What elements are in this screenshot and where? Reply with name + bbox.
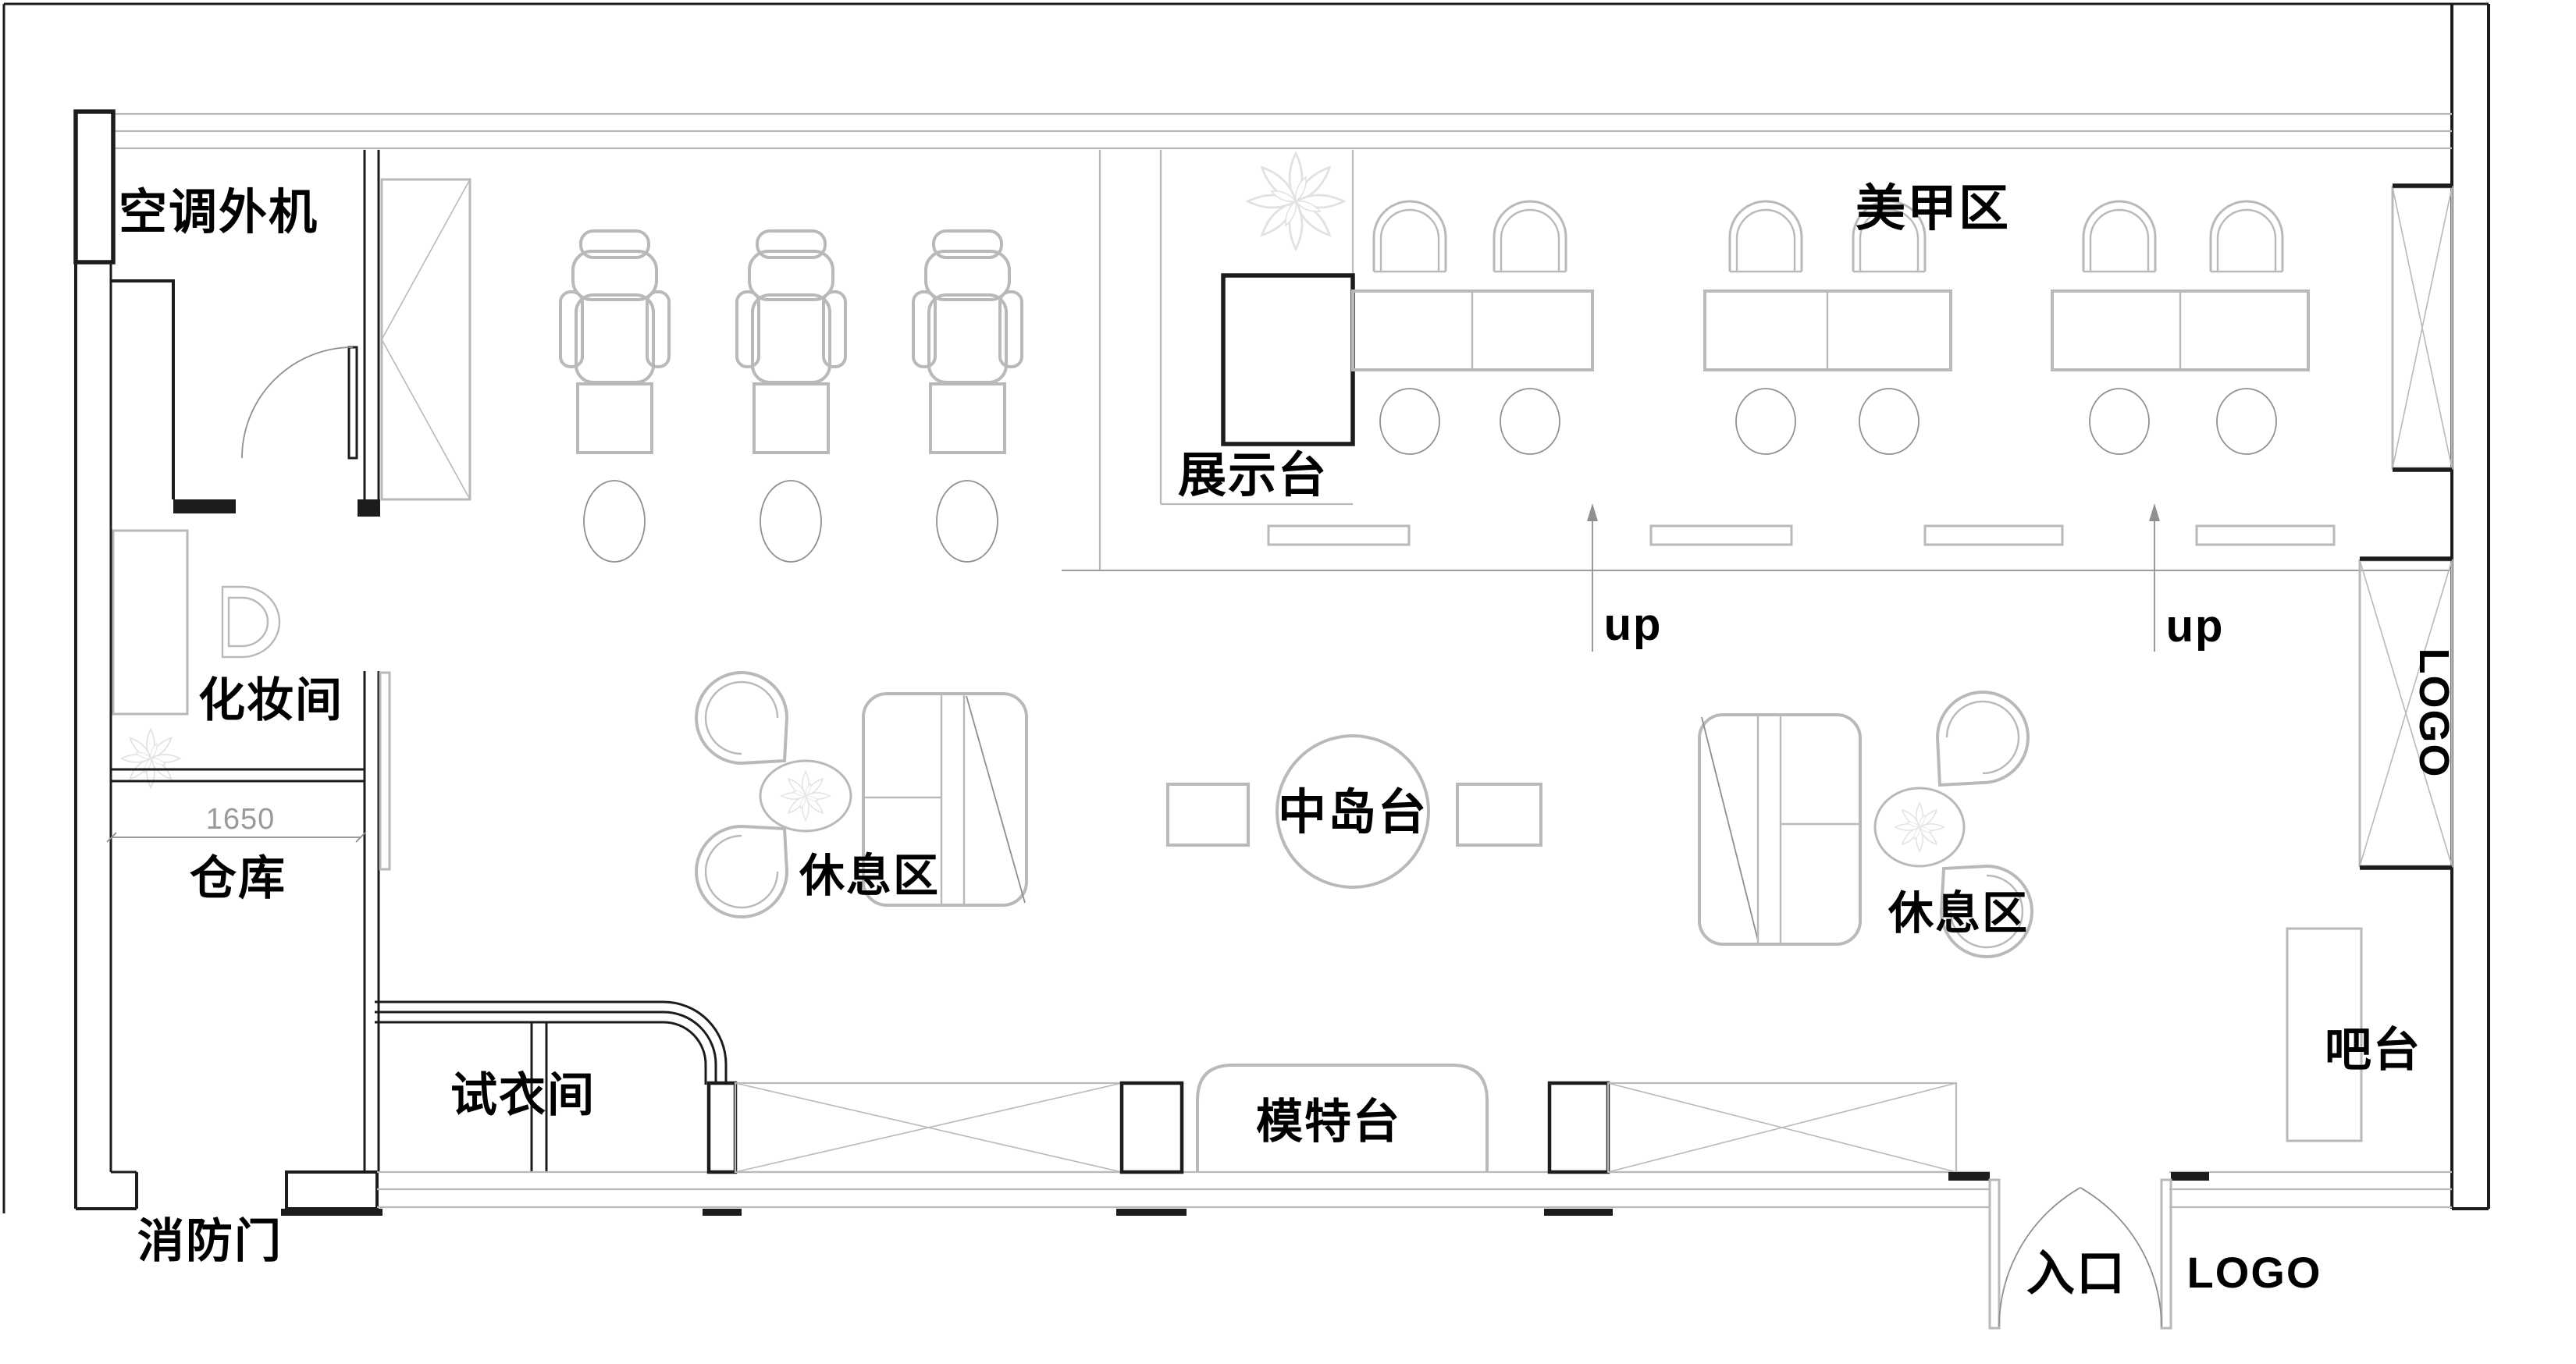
label-logo-front: LOGO [2187,1248,2322,1297]
label-nail-area: 美甲区 [1856,180,2010,236]
side-table [930,384,1005,453]
label-entrance: 入口 [2026,1247,2126,1301]
stool [937,481,998,562]
tech-stool [2217,389,2276,454]
up-arrow-icon [2149,503,2160,521]
flower-decor [122,730,180,788]
window-post [709,1083,735,1172]
fan-chair [696,826,787,917]
floor-mat [1651,526,1791,545]
tech-stool [1736,389,1795,454]
label-bar-counter: 吧台 [2325,1024,2421,1076]
label-display-stand: 展示台 [1178,449,1328,503]
center-island: 中岛台 [1168,736,1541,887]
label-lounge-left: 休息区 [799,851,940,901]
nail-table [1705,291,1951,370]
lounge-left: 休息区 [696,673,1026,917]
label-lounge-right: 休息区 [1888,888,2029,939]
door-leaf [2161,1180,2171,1328]
tech-stool [2090,389,2149,454]
room-makeup: 化妆间 1650 仓库 [107,531,390,1172]
styling-chair-row [560,231,1022,562]
label-model-stage: 模特台 [1256,1096,1401,1148]
door-leaf [1990,1180,1999,1328]
storage-door-leaf [380,673,390,869]
room-fitting: 试衣间 [375,1002,726,1172]
top-wall-band [113,114,2452,148]
label-fitting-room: 试衣间 [450,1069,596,1121]
styling-chair [737,231,845,382]
display-window [1608,1083,1956,1172]
side-table [754,384,828,453]
dimension-1650: 1650 [107,803,365,842]
client-chair [1374,201,1446,272]
tech-stool [1859,389,1919,454]
island-stool [1168,784,1248,845]
nail-zone: 展示台 up [1062,150,2452,652]
sofa [1699,715,1860,944]
label-makeup-room: 化妆间 [198,674,343,726]
client-chair [2211,201,2282,272]
stool [584,481,645,562]
nail-table [1353,291,1592,370]
tech-stool [1380,389,1439,454]
client-chair [1730,201,1802,272]
display-window [735,1083,1122,1172]
lounge-right: 休息区 [1699,692,2032,957]
label-logo-side: LOGO [2411,648,2457,779]
styling-chair [560,231,669,382]
stool [760,481,821,562]
logo-signboard: LOGO [2360,559,2457,868]
client-chair [1494,201,1566,272]
window-post [1122,1083,1182,1172]
flower-decor [1248,154,1344,250]
label-fire-door: 消防门 [137,1215,283,1267]
ac-room-door-swing [242,347,353,458]
floor-mat [1268,526,1409,545]
tech-stool [1500,389,1560,454]
label-up-right: up [2166,601,2225,652]
dimension-text: 1650 [206,803,276,836]
label-storage: 仓库 [190,852,286,904]
up-arrow-icon [1587,503,1598,521]
sink [222,587,279,657]
west-wall [76,112,137,1209]
label-center-island: 中岛台 [1278,786,1428,840]
floorplan-canvas: 空调外机 展示台 [0,0,2576,1364]
label-up-left: up [1604,599,1663,650]
label-ac-outdoor-unit: 空调外机 [119,186,318,240]
exterior-walls [4,4,2489,1213]
fan-chair [1937,692,2028,785]
floor-mat [2197,526,2334,545]
nail-table [2052,291,2308,370]
floorplan-drawing: 空调外机 展示台 [0,0,2576,1364]
island-stool [1457,784,1541,845]
room-ac-outdoor-unit: 空调外机 [111,150,470,517]
flower-decor [1895,803,1944,851]
styling-chair [913,231,1022,382]
floor-mat [1925,526,2062,545]
ac-room-door-leaf [349,347,357,458]
fan-chair [696,673,787,763]
client-chair [2083,201,2155,272]
window-post [1550,1083,1608,1172]
side-table [578,384,652,453]
flower-decor [781,772,830,820]
makeup-counter [113,531,187,714]
ac-room-step-wall [111,281,173,499]
right-wall-features: LOGO 吧台 [2287,186,2457,1141]
ac-room-threshold [173,499,236,513]
fire-door-panel [286,1172,377,1209]
display-stand [1223,275,1353,444]
window-column [2393,186,2452,470]
mirror-cabinet [382,179,470,499]
